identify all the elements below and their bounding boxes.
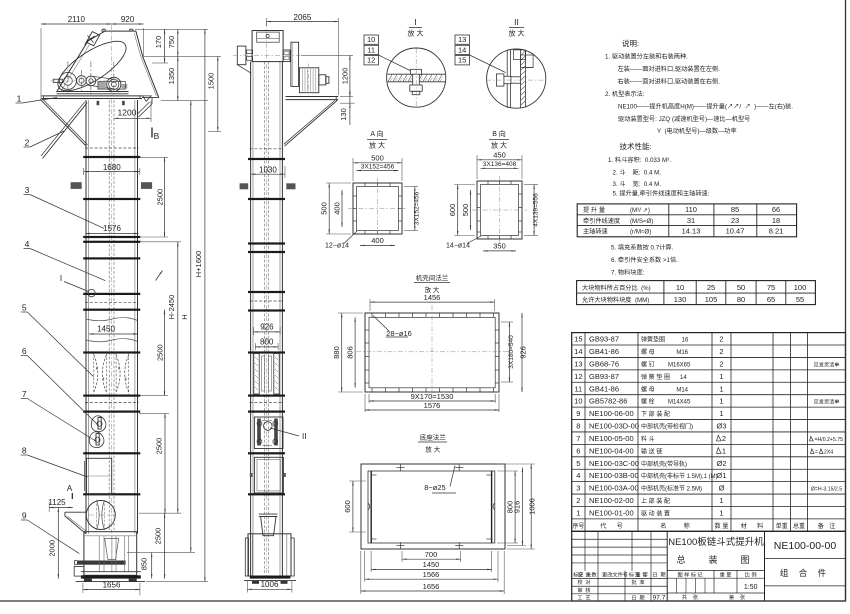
svg-text:2110: 2110 [68, 15, 86, 24]
svg-text:23: 23 [731, 216, 739, 225]
svg-text:926: 926 [260, 323, 274, 332]
svg-text:名 称: 名 称 [660, 522, 690, 530]
svg-text:料 斗: 料 斗 [641, 435, 655, 443]
svg-text:500: 500 [461, 204, 470, 217]
svg-text:18: 18 [772, 216, 780, 225]
svg-text:400: 400 [371, 236, 384, 245]
svg-text:NE100-03C-00: NE100-03C-00 [589, 459, 639, 468]
svg-text:1: 1 [719, 496, 723, 505]
svg-text:Ø: Ø [719, 484, 725, 493]
svg-text:105: 105 [705, 295, 718, 304]
svg-text:2: 2 [719, 347, 723, 356]
svg-text:H-2450: H-2450 [167, 295, 176, 320]
svg-text:弹 簧 垫 圈 14: 弹 簧 垫 圈 14 [641, 373, 687, 381]
svg-text:13: 13 [574, 359, 582, 368]
svg-text:1006: 1006 [261, 580, 279, 589]
svg-text:放 大: 放 大 [408, 29, 424, 38]
svg-text:备 注: 备 注 [818, 522, 836, 530]
svg-text:2500: 2500 [155, 344, 164, 361]
svg-text:2500: 2500 [155, 438, 164, 455]
svg-text:NE100-03D-00: NE100-03D-00 [589, 422, 639, 431]
svg-text:9: 9 [576, 409, 580, 418]
svg-text:500: 500 [371, 154, 384, 163]
svg-text:放 大: 放 大 [369, 141, 385, 150]
svg-text:10: 10 [574, 397, 582, 406]
svg-text:12−ø14: 12−ø14 [325, 243, 349, 250]
svg-text:1450: 1450 [423, 560, 440, 569]
svg-text:2065: 2065 [294, 13, 312, 22]
svg-text:11: 11 [367, 45, 375, 54]
svg-text:II: II [302, 432, 306, 441]
svg-text:880: 880 [332, 346, 341, 359]
svg-text:螺 钉 M16X65: 螺 钉 M16X65 [641, 360, 691, 368]
svg-text:中部机壳(非标节 1.5M),1 (M): 中部机壳(非标节 1.5M),1 (M) [641, 472, 718, 480]
svg-text:1350: 1350 [167, 68, 176, 85]
svg-text:NE100-06-00: NE100-06-00 [589, 409, 634, 418]
svg-text:7: 7 [22, 389, 27, 399]
svg-text:750: 750 [167, 36, 176, 49]
svg-text:13: 13 [458, 35, 466, 44]
svg-text:1576: 1576 [103, 224, 121, 233]
svg-text:NE100-03B-00: NE100-03B-00 [589, 471, 639, 480]
svg-text:2500: 2500 [155, 189, 164, 206]
svg-text:14: 14 [574, 347, 582, 356]
svg-text:4: 4 [576, 471, 580, 480]
svg-text:重 量: 重 量 [720, 571, 732, 579]
svg-text:2: 2 [25, 138, 30, 148]
svg-text:输 送 链: 输 送 链 [641, 447, 662, 455]
svg-text:设 计: 设 计 [577, 571, 590, 579]
svg-text:1656: 1656 [423, 582, 440, 591]
svg-text:14.13: 14.13 [682, 227, 701, 236]
svg-text:I: I [414, 17, 416, 27]
svg-text:B 向: B 向 [492, 129, 506, 138]
svg-text:1576: 1576 [424, 401, 441, 410]
svg-text:组 合 件: 组 合 件 [780, 568, 830, 578]
svg-text:驱 动 装 置: 驱 动 装 置 [641, 509, 670, 517]
svg-text:螺 栓 M14X45: 螺 栓 M14X45 [641, 398, 691, 406]
svg-text:=: = [815, 449, 818, 455]
svg-text:材 料: 材 料 [741, 522, 764, 530]
svg-text:NE100-04-00: NE100-04-00 [589, 446, 634, 455]
svg-text:1: 1 [576, 508, 580, 517]
svg-text:技术性能:: 技术性能: [620, 141, 652, 151]
svg-text:1: 1 [719, 508, 723, 517]
svg-text:A: A [67, 484, 73, 493]
svg-text:4: 4 [25, 239, 30, 249]
svg-text:130: 130 [674, 295, 687, 304]
svg-text:806: 806 [345, 346, 354, 359]
svg-text:上 部 装 配: 上 部 装 配 [641, 497, 670, 505]
svg-text:600: 600 [343, 500, 352, 513]
svg-text:放 大: 放 大 [425, 445, 440, 454]
svg-text:2500: 2500 [153, 528, 162, 545]
svg-text:审 核: 审 核 [577, 586, 590, 594]
svg-text:12: 12 [367, 56, 375, 65]
svg-text:31: 31 [687, 216, 695, 225]
svg-text:2: 2 [719, 335, 723, 344]
svg-text:Ø2: Ø2 [716, 459, 726, 468]
svg-text:1:50: 1:50 [744, 584, 758, 591]
svg-text:图 样 标 记: 图 样 标 记 [677, 571, 702, 579]
svg-text:GB41-86: GB41-86 [589, 384, 619, 393]
svg-text:机壳间法兰: 机壳间法兰 [416, 273, 449, 282]
svg-text:下 部 装 配: 下 部 装 配 [641, 410, 670, 418]
svg-text:单重: 单重 [776, 522, 788, 530]
svg-text:放 大: 放 大 [509, 29, 525, 38]
svg-text:共 张: 共 张 [682, 593, 699, 601]
svg-text:5. 填充系数按 0.7计算.: 5. 填充系数按 0.7计算. [611, 244, 674, 252]
svg-text:5: 5 [22, 303, 27, 313]
svg-text:GB93-87: GB93-87 [589, 335, 619, 344]
svg-text:110: 110 [685, 205, 697, 214]
svg-text:1456: 1456 [424, 293, 441, 302]
svg-text:170: 170 [154, 36, 163, 49]
svg-text:B: B [154, 131, 160, 141]
svg-text:5: 5 [576, 459, 580, 468]
svg-text:驱动装置型号: JZQ (减速机型号)—速比—机型号: 驱动装置型号: JZQ (减速机型号)—速比—机型号 [618, 115, 750, 123]
svg-text:75: 75 [767, 283, 775, 292]
svg-text:NE100-02-00: NE100-02-00 [589, 496, 634, 505]
svg-text:NE100板链斗式提升机: NE100板链斗式提升机 [668, 536, 764, 548]
svg-text:1006: 1006 [528, 498, 537, 515]
svg-text:8.21: 8.21 [769, 227, 784, 236]
svg-text:15: 15 [574, 335, 582, 344]
svg-text:10: 10 [367, 35, 375, 44]
svg-text:450: 450 [493, 151, 506, 160]
svg-text:1. 料斗容积: 0.033 M³.: 1. 料斗容积: 0.033 M³. [608, 156, 671, 164]
svg-text:2000: 2000 [48, 540, 57, 557]
svg-text:说明:: 说明: [622, 38, 639, 48]
svg-text:A 向: A 向 [370, 129, 383, 138]
svg-text:NE100-05-00: NE100-05-00 [589, 434, 634, 443]
svg-text:1566: 1566 [423, 570, 440, 579]
svg-text:1680: 1680 [103, 163, 121, 172]
svg-text:8−ø25: 8−ø25 [424, 483, 445, 492]
svg-text:GB93-87: GB93-87 [589, 372, 619, 381]
svg-text:7. 物料块度:: 7. 物料块度: [611, 269, 645, 277]
svg-text:I: I [60, 274, 62, 283]
svg-text:926: 926 [519, 346, 528, 359]
svg-text:2: 2 [722, 434, 726, 443]
svg-text:1656: 1656 [103, 580, 121, 589]
svg-text:15: 15 [458, 56, 466, 65]
svg-text:700: 700 [425, 550, 438, 559]
svg-text:3X152=456: 3X152=456 [413, 191, 420, 225]
svg-text:10: 10 [676, 283, 684, 292]
svg-text:II: II [514, 17, 519, 27]
svg-text:GB41-86: GB41-86 [589, 347, 619, 356]
svg-text:中部机壳(带检视门): 中部机壳(带检视门) [641, 423, 693, 431]
svg-text:130: 130 [339, 108, 348, 121]
svg-text:允许大块物料块度 (MM): 允许大块物料块度 (MM) [582, 296, 649, 304]
svg-text:1500: 1500 [207, 73, 216, 90]
svg-text:第 张: 第 张 [729, 593, 746, 601]
svg-text:牵引件线速度: 牵引件线速度 [583, 217, 620, 225]
svg-text:100: 100 [794, 283, 807, 292]
svg-text:日 期: 日 期 [652, 572, 665, 579]
svg-text:500: 500 [320, 202, 329, 215]
svg-text:80: 80 [737, 295, 745, 304]
svg-text:1: 1 [722, 446, 726, 455]
svg-text:55: 55 [796, 295, 804, 304]
svg-text:更改文件号: 更改文件号 [602, 571, 628, 579]
svg-text:见发货清单: 见发货清单 [814, 360, 840, 368]
svg-text:NE100-03A-00: NE100-03A-00 [589, 484, 639, 493]
svg-text:标 准 化: 标 准 化 [629, 571, 647, 579]
svg-text:底座法兰: 底座法兰 [420, 433, 447, 442]
svg-text:(M/S≈Ø): (M/S≈Ø) [630, 218, 653, 225]
svg-text:5. 提升量,牵引件线速度和主轴转速:: 5. 提升量,牵引件线速度和主轴转速: [613, 189, 710, 197]
svg-text:3X180=540: 3X180=540 [508, 335, 515, 369]
svg-text:7: 7 [576, 434, 580, 443]
svg-text:总 装 图: 总 装 图 [676, 554, 755, 565]
svg-text:NE100-00-00: NE100-00-00 [774, 540, 837, 552]
svg-text:1: 1 [719, 409, 723, 418]
svg-text:50: 50 [737, 283, 745, 292]
svg-text:3. 斗 宽: 0.4 M.: 3. 斗 宽: 0.4 M. [613, 180, 662, 188]
svg-text:600: 600 [448, 204, 457, 217]
svg-text:中部机壳(标准节 2.5M): 中部机壳(标准节 2.5M) [641, 485, 702, 493]
svg-text:1200: 1200 [118, 108, 137, 118]
svg-text:6: 6 [22, 346, 27, 356]
svg-text:1: 1 [17, 94, 22, 104]
svg-text:H+1600: H+1600 [194, 251, 203, 277]
svg-text:400: 400 [332, 202, 341, 215]
svg-text:14−ø14: 14−ø14 [446, 243, 470, 250]
svg-text:GB5782-86: GB5782-86 [589, 397, 627, 406]
svg-text:1200: 1200 [341, 68, 350, 85]
svg-text:8: 8 [576, 422, 580, 431]
svg-text:序号: 序号 [572, 522, 584, 530]
svg-text:NE100——提升机高度H(M)——提升量(↗↗/ ↗: NE100——提升机高度H(M)——提升量(↗↗/ ↗ )——左(右)装. [618, 103, 793, 111]
svg-text:1450: 1450 [97, 325, 115, 334]
svg-text:14: 14 [458, 45, 466, 54]
svg-text:螺 母 M14: 螺 母 M14 [641, 385, 689, 393]
svg-text:放 大: 放 大 [491, 141, 507, 150]
svg-text:2. 机型表示法:: 2. 机型表示法: [605, 90, 645, 98]
svg-text:总重: 总重 [793, 522, 805, 530]
svg-text:350: 350 [493, 242, 506, 251]
svg-text:见发货清单: 见发货清单 [814, 398, 840, 406]
svg-text:代 号: 代 号 [600, 522, 623, 530]
svg-text:NE100-01-00: NE100-01-00 [589, 508, 634, 517]
svg-text:3X152=456: 3X152=456 [361, 163, 395, 170]
svg-text:Ø1: Ø1 [716, 471, 726, 480]
svg-text:H: H [180, 314, 189, 319]
svg-text:比 例: 比 例 [745, 571, 757, 579]
svg-text:1030: 1030 [259, 165, 277, 174]
svg-text:(M³/ ↗): (M³/ ↗) [630, 207, 650, 214]
svg-text:3X136=408: 3X136=408 [483, 161, 517, 168]
svg-text:右装——面对进料口,驱动装置在右侧.: 右装——面对进料口,驱动装置在右侧. [618, 78, 721, 86]
svg-text:螺 母 M16: 螺 母 M16 [641, 348, 689, 356]
svg-text:2X4: 2X4 [824, 449, 833, 455]
svg-text:中部机壳(带导轨): 中部机壳(带导轨) [641, 460, 687, 468]
svg-text:25: 25 [707, 283, 715, 292]
svg-text:12: 12 [574, 372, 582, 381]
svg-text:(r/M≈Ø): (r/M≈Ø) [630, 229, 651, 236]
svg-text:GB68-76: GB68-76 [589, 359, 619, 368]
svg-text:9X170=1530: 9X170=1530 [411, 392, 454, 401]
svg-text:1: 1 [719, 372, 723, 381]
svg-text:11: 11 [574, 384, 582, 393]
svg-text:Ø3: Ø3 [716, 422, 726, 431]
svg-text:=H/0.2+5.75: =H/0.2+5.75 [815, 437, 844, 443]
svg-text:主轴转速: 主轴转速 [583, 228, 608, 236]
svg-text:1: 1 [719, 397, 723, 406]
svg-text:批 准: 批 准 [631, 578, 644, 586]
svg-text:2: 2 [719, 359, 723, 368]
svg-text:3: 3 [25, 185, 30, 195]
svg-text:2. 斗 距: 0.4 M.: 2. 斗 距: 0.4 M. [613, 170, 662, 177]
svg-text:8: 8 [22, 446, 27, 456]
svg-text:大块物料所占百分比 (%): 大块物料所占百分比 (%) [582, 284, 651, 292]
svg-text:6. 牵引件安全系数 >1倍.: 6. 牵引件安全系数 >1倍. [611, 256, 678, 264]
svg-text:9: 9 [22, 511, 27, 521]
svg-text:数 量: 数 量 [715, 522, 729, 530]
svg-text:65: 65 [767, 295, 775, 304]
svg-text:85: 85 [731, 205, 739, 214]
svg-text:66: 66 [772, 205, 780, 214]
svg-text:10.47: 10.47 [726, 227, 745, 236]
svg-text:850: 850 [140, 558, 149, 571]
svg-text:1. 驱动装置分左装和右装两种.: 1. 驱动装置分左装和右装两种. [605, 53, 688, 61]
svg-text:916: 916 [513, 501, 522, 514]
svg-text:弹簧垫圈 16: 弹簧垫圈 16 [641, 336, 689, 344]
svg-text:Ø=H-3.15/2.5: Ø=H-3.15/2.5 [811, 487, 842, 493]
svg-text:1: 1 [719, 384, 723, 393]
svg-text:提 升 量: 提 升 量 [583, 206, 605, 214]
svg-text:920: 920 [121, 15, 135, 24]
svg-text:6: 6 [576, 446, 580, 455]
svg-text:校 对: 校 对 [577, 578, 590, 586]
svg-text:1125: 1125 [48, 498, 66, 507]
svg-text:800: 800 [260, 337, 274, 346]
svg-text:3: 3 [576, 484, 580, 493]
svg-text:左装——面对进料口,驱动装置在左侧.: 左装——面对进料口,驱动装置在左侧. [618, 65, 721, 73]
svg-text:4X139=556: 4X139=556 [533, 193, 540, 227]
svg-text:2: 2 [576, 496, 580, 505]
svg-text:Y (电动机型号)—级数—功率: Y (电动机型号)—级数—功率 [657, 127, 737, 135]
